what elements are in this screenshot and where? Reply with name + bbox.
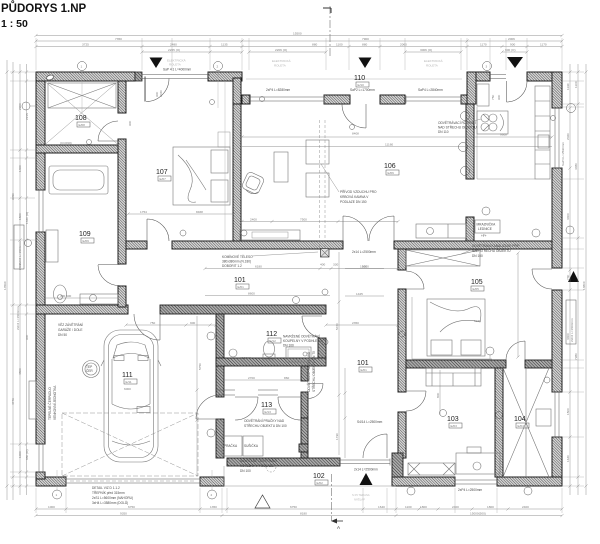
svg-text:7350: 7350 (115, 37, 122, 41)
svg-text:1: 1 (56, 493, 58, 497)
svg-text:STŘECHU OBJEKTU DN 75: STŘECHU OBJEKTU DN 75 (311, 351, 316, 392)
svg-text:MRAZNIČKA: MRAZNIČKA (477, 222, 497, 227)
svg-text:E/10: E/10 (358, 83, 365, 87)
svg-text:NAD STŘECHU OBJEKTU: NAD STŘECHU OBJEKTU (438, 125, 477, 130)
svg-text:1170: 1170 (480, 43, 487, 47)
svg-text:14560: 14560 (3, 281, 7, 290)
svg-text:2400: 2400 (452, 505, 459, 509)
svg-text:2xP4 L=8280mm: 2xP4 L=8280mm (266, 88, 291, 92)
svg-text:860: 860 (284, 376, 289, 380)
svg-text:1800: 1800 (420, 505, 427, 509)
svg-text:DOBORIT 1.2: DOBORIT 1.2 (222, 264, 242, 268)
svg-text:2265 (O): 2265 (O) (168, 48, 180, 52)
svg-text:TEPELNÉ ČERPADLO: TEPELNÉ ČERPADLO (47, 387, 52, 420)
svg-text:+F+: +F+ (481, 234, 487, 238)
svg-text:1190: 1190 (566, 83, 570, 90)
svg-text:E/02: E/02 (317, 481, 324, 485)
svg-text:E/01: E/01 (238, 285, 245, 289)
svg-text:DN 100: DN 100 (472, 254, 483, 258)
svg-text:E/06: E/06 (388, 171, 395, 175)
svg-text:1: 1 (81, 65, 83, 69)
svg-text:E/12: E/12 (270, 339, 277, 343)
svg-text:380x380mm (N.180): 380x380mm (N.180) (222, 260, 251, 264)
svg-text:1340 (O): 1340 (O) (25, 212, 29, 224)
svg-text:2: 2 (217, 65, 219, 69)
svg-text:750: 750 (150, 321, 155, 325)
svg-text:1100: 1100 (574, 81, 578, 88)
svg-text:2900: 2900 (18, 103, 22, 110)
svg-text:7900: 7900 (362, 37, 369, 41)
svg-text:2020: 2020 (159, 90, 163, 97)
svg-text:SaP4 L=2840mm: SaP4 L=2840mm (418, 88, 443, 92)
svg-text:730: 730 (566, 275, 570, 280)
svg-text:(CC093): (CC093) (240, 356, 252, 360)
svg-text:NAVRŽENÉ ODVĚTRÁNÍ: NAVRŽENÉ ODVĚTRÁNÍ (283, 334, 320, 339)
svg-text:15000(500): 15000(500) (470, 512, 486, 516)
svg-text:DETAIL VIZ D 1.1.2: DETAIL VIZ D 1.1.2 (92, 486, 120, 490)
svg-text:NAVRŽENÉ ODVĚTRÁNÍ: NAVRŽENÉ ODVĚTRÁNÍ (240, 458, 277, 463)
svg-text:ELEKTRICKÁ: ELEKTRICKÁ (424, 59, 443, 63)
svg-text:VENKOVNÍ JEDNOTKA: VENKOVNÍ JEDNOTKA (53, 385, 57, 420)
svg-text:2x14 L=2500mm: 2x14 L=2500mm (352, 250, 376, 254)
svg-text:1170: 1170 (540, 43, 547, 47)
svg-text:2060: 2060 (566, 133, 570, 140)
svg-text:7980: 7980 (574, 353, 578, 360)
svg-text:2006: 2006 (508, 37, 515, 41)
svg-text:2xP4 L=2500mm: 2xP4 L=2500mm (458, 488, 483, 492)
svg-text:330: 330 (333, 263, 338, 267)
svg-text:5248: 5248 (474, 319, 481, 323)
svg-text:S 05 TERASA: S 05 TERASA (352, 493, 370, 497)
svg-text:2x14 L=2500mm: 2x14 L=2500mm (354, 468, 378, 472)
svg-text:E/03: E/03 (451, 424, 458, 428)
svg-text:E/04: E/04 (518, 424, 525, 428)
svg-text:E/11: E/11 (126, 380, 132, 384)
svg-text:1500: 1500 (362, 265, 369, 269)
svg-text:S4/14 L=2500mm: S4/14 L=2500mm (357, 420, 383, 424)
svg-text:107: 107 (156, 169, 168, 176)
svg-text:NÁŠLAP: NÁŠLAP (354, 497, 365, 502)
svg-text:6180: 6180 (255, 265, 262, 269)
svg-text:2480: 2480 (170, 43, 177, 47)
svg-text:(CC090): (CC090) (60, 141, 72, 145)
svg-text:KOMÍNOVÉ TĚLESO: KOMÍNOVÉ TĚLESO (222, 254, 253, 259)
svg-text:7500: 7500 (300, 218, 307, 222)
svg-text:113: 113 (261, 402, 272, 409)
svg-text:900: 900 (497, 95, 501, 100)
svg-text:1640: 1640 (566, 455, 570, 462)
svg-text:101: 101 (357, 360, 369, 367)
svg-text:15500: 15500 (293, 32, 302, 36)
svg-text:4776: 4776 (11, 398, 15, 405)
svg-text:111: 111 (122, 372, 133, 379)
svg-text:1000: 1000 (48, 505, 55, 509)
svg-text:3725: 3725 (82, 43, 89, 47)
svg-text:SaP 4.1 L=4000mm: SaP 4.1 L=4000mm (163, 68, 192, 72)
svg-text:400 600: 400 600 (60, 294, 71, 298)
svg-text:1350: 1350 (210, 505, 217, 509)
svg-text:SUŠIČKA: SUŠIČKA (244, 443, 259, 448)
svg-text:8468: 8468 (196, 210, 203, 214)
svg-text:E/05: E/05 (473, 287, 480, 291)
svg-text:ROLETA: ROLETA (426, 64, 438, 68)
svg-text:1 : 50: 1 : 50 (1, 18, 28, 30)
svg-text:880: 880 (312, 43, 317, 47)
svg-text:2400: 2400 (250, 218, 257, 222)
svg-text:1100: 1100 (336, 43, 343, 47)
svg-text:1135: 1135 (221, 43, 228, 47)
svg-text:1400: 1400 (18, 165, 22, 172)
svg-text:2xC2 L=1500mm: 2xC2 L=1500mm (570, 318, 574, 342)
svg-text:8180: 8180 (300, 512, 307, 516)
svg-text:PRAČKA: PRAČKA (224, 443, 238, 448)
svg-text:4480: 4480 (574, 163, 578, 170)
svg-text:NAD STŘECHU OBJEKTU: NAD STŘECHU OBJEKTU (472, 248, 511, 253)
svg-text:SaP2 L=1700mm: SaP2 L=1700mm (350, 88, 375, 92)
svg-text:3400: 3400 (566, 213, 570, 220)
svg-text:800: 800 (436, 393, 440, 398)
svg-text:2700: 2700 (248, 376, 255, 380)
svg-text:1640: 1640 (378, 505, 385, 509)
svg-text:ODVĚTRÁNÍ KANALIZACE PŘÍP.: ODVĚTRÁNÍ KANALIZACE PŘÍP. (472, 243, 520, 248)
svg-text:104: 104 (514, 416, 526, 423)
svg-text:2206 (O): 2206 (O) (275, 48, 287, 52)
svg-text:102: 102 (313, 473, 325, 480)
svg-text:PODLAZE DN 150: PODLAZE DN 150 (340, 200, 367, 204)
svg-text:1000: 1000 (18, 451, 22, 458)
svg-text:E/09: E/09 (83, 239, 90, 243)
svg-text:105: 105 (471, 279, 483, 286)
svg-text:A: A (337, 525, 340, 530)
svg-text:2xC2 L=1500mm: 2xC2 L=1500mm (16, 306, 20, 330)
svg-text:1500: 1500 (18, 213, 22, 220)
svg-text:900: 900 (25, 335, 29, 340)
svg-text:900 (O): 900 (O) (505, 48, 516, 52)
svg-text:3xH4 L=3580mm (DOLŮ): 3xH4 L=3580mm (DOLŮ) (92, 500, 128, 505)
svg-text:1100: 1100 (405, 505, 412, 509)
svg-text:TŘEPNÍK před 315mm: TŘEPNÍK před 315mm (92, 490, 125, 495)
svg-text:LEDNICE: LEDNICE (478, 227, 492, 231)
svg-text:ODVĚTRÁNÍ PRAČKY NAD: ODVĚTRÁNÍ PRAČKY NAD (244, 418, 285, 423)
svg-text:8600: 8600 (248, 292, 255, 296)
svg-text:6750: 6750 (128, 505, 135, 509)
svg-text:KOUPELNY V PODHLEDU: KOUPELNY V PODHLEDU (283, 339, 323, 343)
svg-text:ODVĚTRÁNÍ PRAČKY NAD: ODVĚTRÁNÍ PRAČKY NAD (306, 351, 311, 392)
svg-text:2350: 2350 (352, 321, 359, 325)
svg-text:1790: 1790 (335, 433, 339, 440)
svg-text:900: 900 (510, 43, 515, 47)
svg-text:13800: 13800 (582, 281, 586, 290)
svg-text:8408: 8408 (352, 132, 359, 136)
svg-text:2xC2 L=1500mm: 2xC2 L=1500mm (18, 241, 22, 265)
svg-text:1800: 1800 (487, 505, 494, 509)
svg-text:DN 100: DN 100 (240, 469, 251, 473)
svg-text:880 (O): 880 (O) (25, 450, 29, 461)
svg-text:9608: 9608 (500, 133, 507, 137)
svg-text:3006 (O): 3006 (O) (420, 48, 432, 52)
svg-text:11160: 11160 (385, 143, 393, 147)
svg-text:5750: 5750 (198, 363, 202, 370)
svg-text:PŮDORYS 1.NP: PŮDORYS 1.NP (1, 1, 87, 15)
svg-text:KRBOVÁ KAMNA V: KRBOVÁ KAMNA V (340, 195, 369, 199)
svg-text:6000: 6000 (124, 387, 131, 391)
svg-text:1425: 1425 (356, 292, 363, 296)
svg-text:STŘECHU OBJEKTU DN 100: STŘECHU OBJEKTU DN 100 (244, 423, 287, 428)
svg-text:6750: 6750 (290, 505, 297, 509)
svg-text:400: 400 (320, 263, 325, 267)
svg-text:2400: 2400 (522, 505, 529, 509)
svg-text:2xS1 L=5600mm (NAHORU): 2xS1 L=5600mm (NAHORU) (92, 496, 133, 500)
svg-text:109: 109 (79, 231, 91, 238)
svg-text:ELEKTRICKÁ: ELEKTRICKÁ (272, 59, 291, 63)
svg-text:750: 750 (491, 95, 495, 100)
svg-text:112: 112 (266, 331, 277, 338)
svg-text:103: 103 (447, 416, 459, 423)
svg-text:DN 50: DN 50 (58, 333, 67, 337)
svg-text:ČER: ČER (86, 368, 93, 373)
svg-text:E/01: E/01 (361, 368, 368, 372)
svg-text:2060: 2060 (400, 43, 407, 47)
svg-text:101: 101 (234, 277, 246, 284)
svg-text:3: 3 (486, 65, 488, 69)
svg-text:2215: 2215 (25, 113, 29, 120)
svg-text:DN 100: DN 100 (283, 344, 294, 348)
svg-text:106: 106 (384, 163, 396, 170)
svg-text:E/13: E/13 (265, 410, 272, 414)
svg-text:VĚZ ZÁVĚTRÁNÍ: VĚZ ZÁVĚTRÁNÍ (58, 322, 83, 327)
svg-text:ROLETA: ROLETA (274, 64, 286, 68)
svg-text:GARÁŽE / DOLE: GARÁŽE / DOLE (58, 327, 82, 332)
svg-text:1754: 1754 (140, 210, 147, 214)
svg-text:9350: 9350 (120, 512, 127, 516)
svg-text:4800: 4800 (18, 368, 22, 375)
svg-text:E/08: E/08 (79, 123, 86, 127)
svg-text:2: 2 (211, 493, 213, 497)
svg-text:900: 900 (128, 121, 132, 126)
svg-text:5470: 5470 (335, 323, 339, 330)
svg-text:880: 880 (362, 43, 367, 47)
svg-text:KOTELNY V PODLAZE: KOTELNY V PODLAZE (240, 464, 274, 468)
svg-text:SaP4 L=2590mm: SaP4 L=2590mm (561, 142, 565, 166)
svg-text:ODVĚTRÁVACÍ POTRUBÍ: ODVĚTRÁVACÍ POTRUBÍ (438, 120, 476, 125)
svg-text:1500: 1500 (566, 408, 570, 415)
svg-text:PŘÍVOD VZDUCHU PRO: PŘÍVOD VZDUCHU PRO (340, 189, 377, 194)
svg-text:108: 108 (75, 115, 87, 122)
svg-text:900: 900 (190, 321, 195, 325)
svg-text:110: 110 (354, 75, 365, 82)
svg-text:DN 110: DN 110 (438, 130, 449, 134)
svg-text:ROLETA: ROLETA (169, 63, 181, 67)
svg-text:9050: 9050 (11, 193, 15, 200)
svg-text:E/07: E/07 (160, 177, 167, 181)
